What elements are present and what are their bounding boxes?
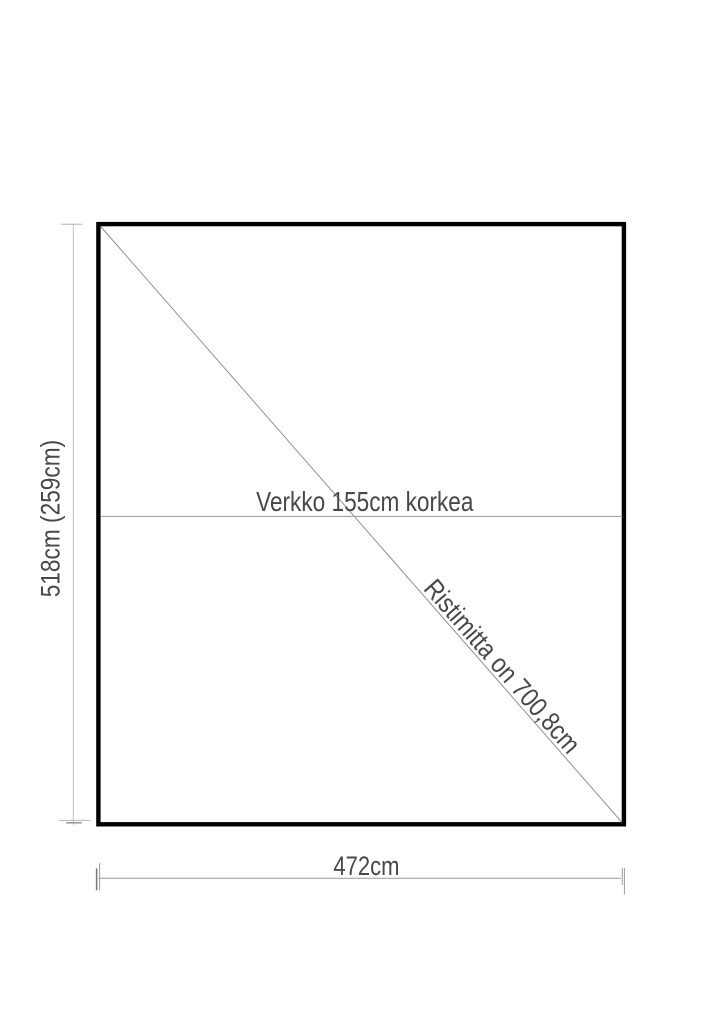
svg-text:472cm: 472cm: [333, 851, 399, 881]
svg-text:Verkko 155cm korkea: Verkko 155cm korkea: [256, 486, 474, 517]
svg-text:518cm (259cm): 518cm (259cm): [35, 440, 65, 598]
